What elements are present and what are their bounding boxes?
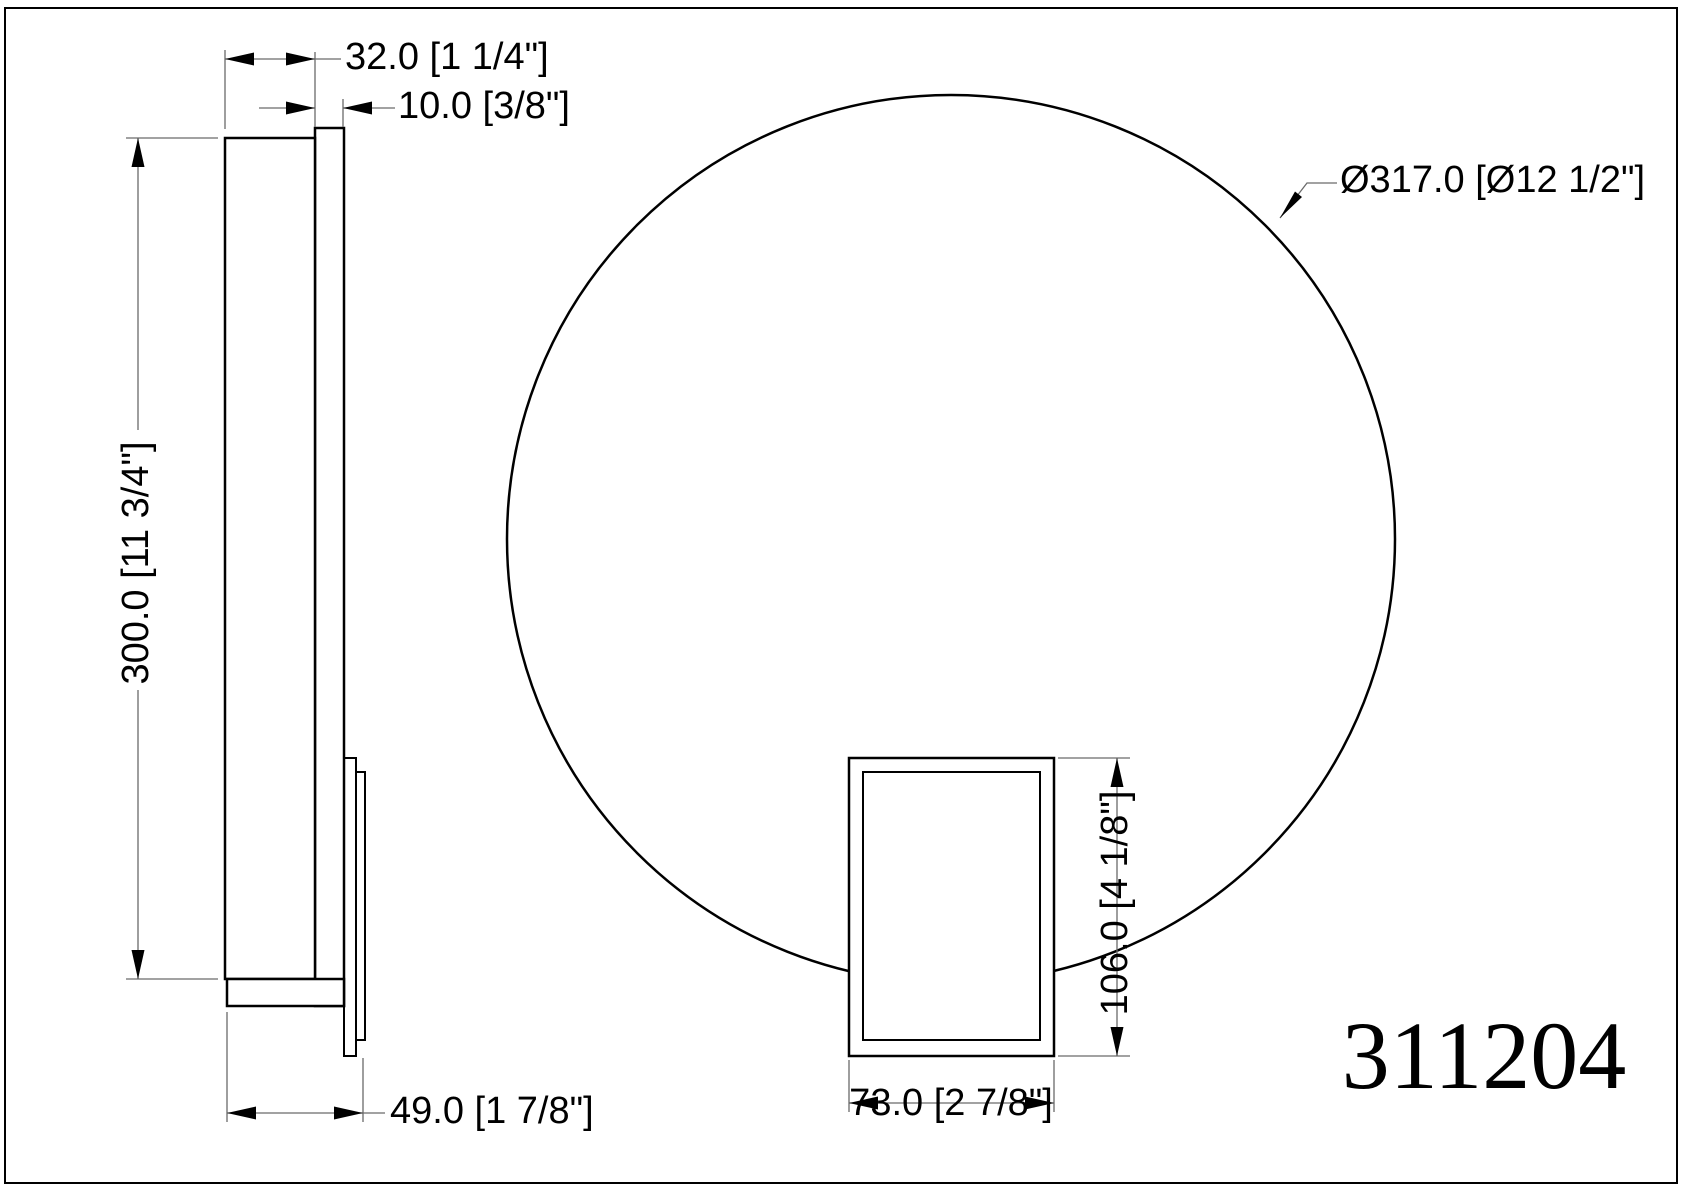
side-view [225, 128, 365, 1056]
arrow-height-top [132, 138, 145, 167]
arrow-plate-left [286, 102, 315, 115]
dim-depth-label: 32.0 [1 1/4"] [345, 38, 549, 76]
arrow-total-depth-right [334, 1107, 363, 1120]
arrow-depth-right [286, 53, 315, 66]
arrow-diameter-leader [1280, 192, 1302, 219]
part-number: 311204 [1342, 1008, 1626, 1104]
side-box-face [356, 772, 365, 1040]
side-bottom-plate [227, 979, 344, 1006]
arrow-box-height-bottom [1111, 1027, 1124, 1056]
dim-total-depth-lines [227, 1012, 385, 1122]
side-back-plate [315, 128, 344, 1006]
dim-plate-lines [259, 99, 395, 127]
arrow-plate-right [343, 102, 372, 115]
drawing-canvas: 32.0 [1 1/4"] 10.0 [3/8"] 300.0 [11 3/4"… [0, 0, 1684, 1190]
dim-plate-label: 10.0 [3/8"] [398, 87, 570, 125]
arrow-total-depth-left [227, 1107, 256, 1120]
dim-height-label: 300.0 [11 3/4"] [117, 437, 155, 688]
front-box-outer [849, 758, 1054, 1056]
front-view [507, 95, 1395, 1056]
dim-diameter-label: Ø317.0 [Ø12 1/2"] [1340, 161, 1645, 199]
dim-total-depth-label: 49.0 [1 7/8"] [390, 1092, 594, 1130]
side-junction-box [344, 758, 356, 1056]
arrow-box-height-top [1111, 758, 1124, 787]
diameter-leader-line [1280, 183, 1337, 218]
dim-box-width-label: 73.0 [2 7/8"] [849, 1084, 1053, 1122]
arrow-depth-left [225, 53, 254, 66]
side-body [225, 138, 315, 979]
arrow-height-bottom [132, 950, 145, 979]
dim-box-height-label: 106.0 [4 1/8"] [1096, 791, 1134, 1016]
